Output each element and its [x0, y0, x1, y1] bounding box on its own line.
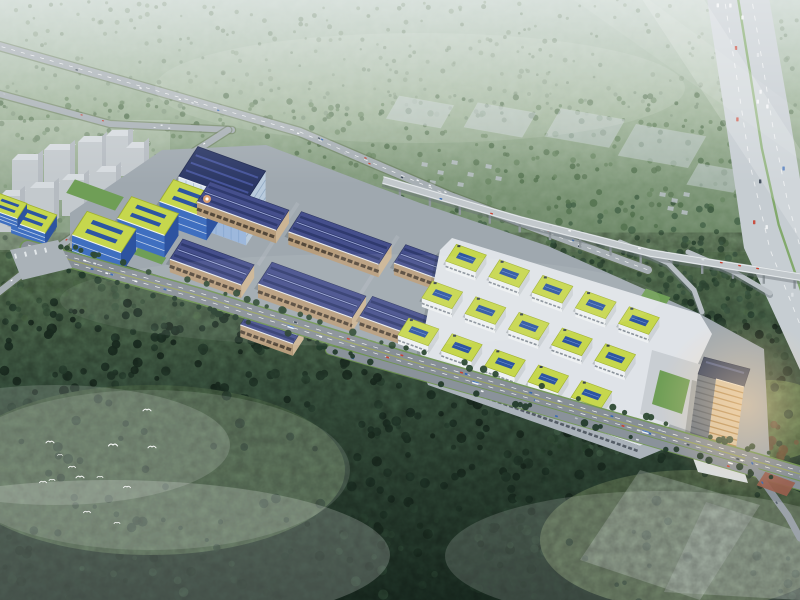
tree: [629, 435, 633, 439]
tree: [592, 424, 599, 431]
tree: [581, 419, 589, 427]
tree: [66, 269, 71, 274]
tree: [720, 197, 725, 202]
tree: [623, 208, 628, 213]
tree: [64, 245, 69, 250]
tree: [350, 354, 355, 359]
tree: [566, 200, 571, 205]
tree: [657, 202, 662, 207]
rooftop-unit: [583, 382, 586, 384]
tree: [96, 252, 101, 257]
tree: [635, 235, 640, 240]
tree: [628, 226, 636, 234]
tree: [682, 236, 689, 243]
tree: [704, 203, 709, 208]
tree: [512, 401, 519, 408]
tree: [649, 202, 655, 208]
tree: [622, 410, 627, 415]
tree: [554, 205, 558, 209]
tree: [527, 210, 531, 214]
tree: [547, 207, 551, 211]
tree: [473, 390, 479, 396]
sun-glint-core: [205, 197, 208, 200]
tree: [663, 447, 668, 452]
tree: [700, 222, 706, 228]
tree: [697, 240, 703, 246]
tree: [668, 192, 674, 198]
tree: [719, 241, 724, 246]
tree: [568, 221, 572, 225]
tree: [461, 359, 467, 365]
tree: [403, 345, 408, 350]
tree: [367, 359, 374, 366]
tree: [640, 216, 644, 220]
tree: [603, 210, 608, 215]
vehicle: [791, 293, 793, 297]
scene-svg: [0, 0, 800, 600]
tree: [557, 196, 562, 201]
tree: [714, 229, 719, 234]
tree: [609, 404, 616, 411]
tree: [421, 350, 426, 355]
tree: [58, 244, 63, 249]
tree: [671, 227, 677, 233]
tree: [650, 188, 654, 192]
tree: [692, 241, 697, 246]
tree: [539, 383, 545, 389]
tree: [492, 371, 498, 377]
vehicle: [766, 225, 768, 229]
tree: [597, 213, 603, 219]
tree: [621, 224, 628, 231]
tree: [618, 200, 623, 205]
rooftop-unit: [496, 350, 499, 352]
tree: [596, 189, 602, 195]
tree: [555, 218, 563, 226]
rooftop-unit: [457, 245, 460, 247]
tree: [615, 207, 622, 214]
tree: [696, 206, 703, 213]
rooftop-unit: [607, 345, 610, 347]
tree: [659, 230, 664, 235]
tree: [79, 272, 85, 278]
tree: [647, 191, 653, 197]
tree: [78, 248, 83, 253]
tree: [634, 195, 639, 200]
tree: [646, 239, 650, 243]
tree: [571, 202, 576, 207]
tree: [73, 245, 78, 250]
rooftop-unit: [540, 366, 543, 368]
tree: [466, 365, 473, 372]
tree: [678, 202, 684, 208]
tree: [654, 224, 658, 228]
tree: [438, 381, 444, 387]
atmospheric-haze: [0, 0, 800, 185]
tree: [597, 219, 602, 224]
tree: [672, 213, 678, 219]
tree: [631, 205, 635, 209]
tree: [522, 403, 529, 410]
tree: [120, 259, 127, 266]
tree: [566, 208, 572, 214]
aerial-site-rendering: [0, 0, 800, 600]
tree: [480, 366, 487, 373]
tree: [576, 396, 581, 401]
tree: [663, 186, 668, 191]
tree: [590, 199, 598, 207]
tree: [630, 212, 635, 217]
tree: [333, 349, 338, 354]
fog-patch: [60, 254, 660, 346]
vehicle: [753, 220, 755, 224]
tree: [486, 195, 492, 201]
tree: [643, 413, 650, 420]
tree: [513, 207, 517, 211]
